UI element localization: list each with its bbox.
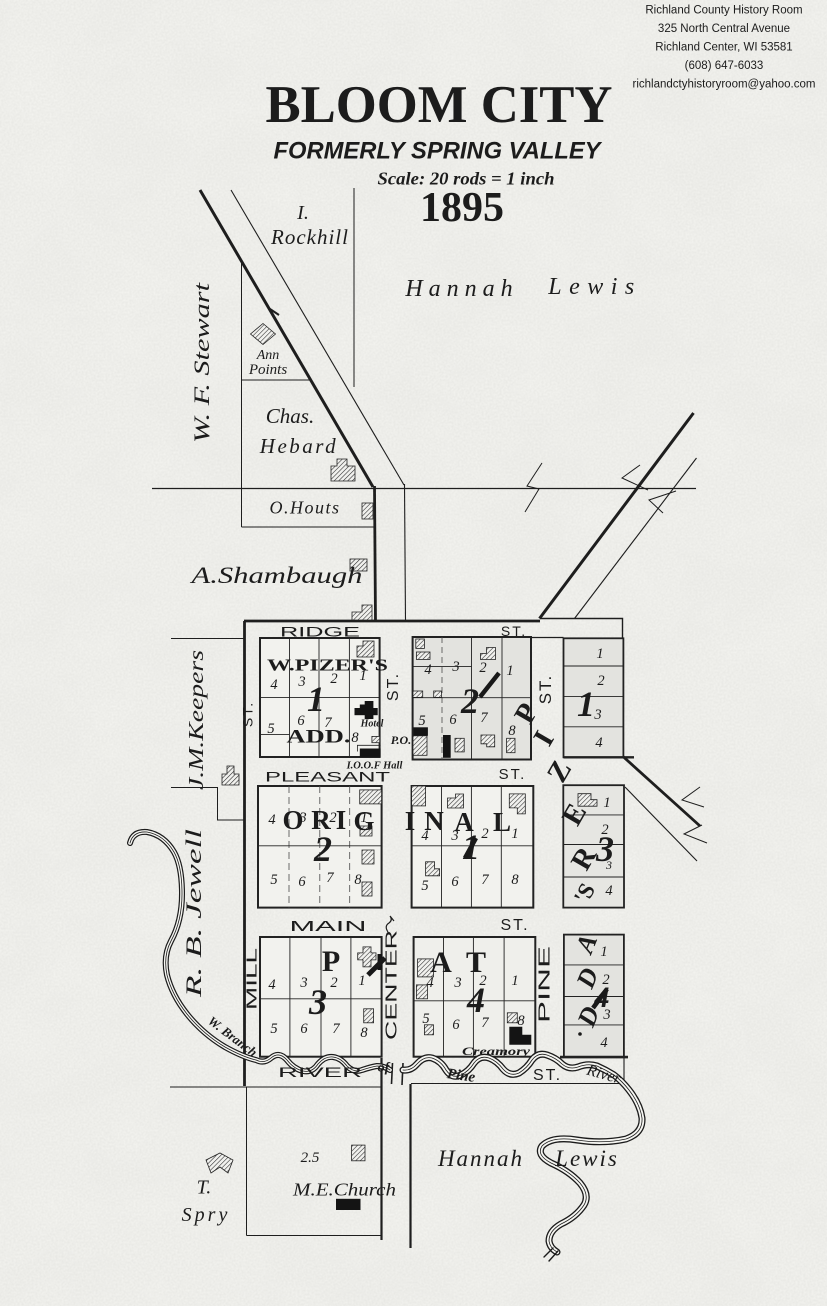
- svg-text:1: 1: [360, 810, 367, 826]
- svg-text:O.Houts: O.Houts: [269, 498, 340, 518]
- svg-text:8: 8: [360, 1025, 368, 1041]
- svg-text:Points: Points: [248, 362, 287, 378]
- svg-text:3: 3: [593, 707, 601, 723]
- svg-text:7: 7: [481, 872, 489, 888]
- svg-text:4: 4: [595, 735, 602, 751]
- svg-text:8: 8: [511, 872, 519, 888]
- svg-text:7: 7: [326, 870, 334, 886]
- svg-text:Ann: Ann: [256, 348, 280, 363]
- svg-text:6: 6: [452, 1017, 460, 1033]
- svg-text:4: 4: [424, 662, 431, 678]
- svg-text:Richland County History Room: Richland County History Room: [645, 5, 802, 17]
- svg-text:richlandctyhistoryroom@yahoo.c: richlandctyhistoryroom@yahoo.com: [633, 79, 816, 91]
- svg-text:6: 6: [300, 1021, 308, 1037]
- svg-text:ST.: ST.: [533, 1067, 562, 1084]
- svg-text:8: 8: [354, 872, 362, 888]
- svg-text:1: 1: [511, 973, 518, 989]
- svg-text:5: 5: [267, 721, 274, 737]
- svg-text:BLOOM CITY: BLOOM CITY: [266, 76, 613, 134]
- svg-text:ADD.: ADD.: [287, 727, 351, 748]
- svg-text:4: 4: [605, 883, 612, 899]
- svg-text:2: 2: [479, 973, 486, 989]
- svg-text:RIVER: RIVER: [278, 1064, 362, 1080]
- svg-text:6: 6: [449, 712, 457, 728]
- svg-text:8: 8: [351, 730, 359, 746]
- svg-text:4: 4: [268, 977, 275, 993]
- svg-text:3: 3: [450, 828, 458, 844]
- svg-text:ST.: ST.: [536, 674, 555, 705]
- svg-text:4: 4: [268, 812, 275, 828]
- svg-text:2: 2: [602, 972, 609, 988]
- svg-text:5: 5: [270, 1021, 277, 1037]
- svg-text:W. F. Stewart: W. F. Stewart: [189, 282, 214, 443]
- svg-text:Hannah: Hannah: [437, 1146, 524, 1171]
- svg-text:RIDGE: RIDGE: [280, 625, 360, 640]
- svg-text:ST.: ST.: [500, 917, 529, 934]
- svg-text:PLEASANT: PLEASANT: [265, 769, 391, 785]
- svg-text:Lewis: Lewis: [547, 274, 642, 300]
- svg-text:Hebard: Hebard: [259, 434, 338, 458]
- svg-text:1: 1: [506, 663, 513, 679]
- svg-text:J.M.Keepers: J.M.Keepers: [184, 650, 208, 790]
- svg-text:I: I: [405, 806, 416, 836]
- svg-text:3: 3: [299, 975, 307, 991]
- svg-text:2: 2: [597, 673, 604, 689]
- svg-text:I: I: [336, 805, 347, 835]
- svg-text:Chas.: Chas.: [266, 404, 314, 428]
- svg-text:2: 2: [313, 829, 332, 869]
- svg-text:Creamory: Creamory: [462, 1044, 531, 1058]
- svg-text:ST.: ST.: [501, 623, 527, 639]
- svg-text:7: 7: [481, 1015, 489, 1031]
- svg-text:3: 3: [605, 858, 612, 872]
- svg-text:4: 4: [270, 677, 277, 693]
- svg-text:6: 6: [298, 874, 306, 890]
- svg-text:4: 4: [600, 1035, 607, 1051]
- svg-text:1: 1: [359, 668, 366, 684]
- svg-text:1: 1: [511, 826, 518, 842]
- svg-text:Lewis: Lewis: [554, 1146, 619, 1171]
- svg-text:A.Shambaugh: A.Shambaugh: [189, 563, 363, 588]
- svg-text:3: 3: [451, 659, 459, 675]
- svg-text:5: 5: [422, 1011, 429, 1027]
- svg-text:MAIN: MAIN: [290, 919, 367, 935]
- svg-text:P: P: [322, 945, 340, 978]
- svg-text:1: 1: [577, 684, 595, 724]
- svg-text:I.: I.: [296, 202, 309, 224]
- svg-text:3: 3: [297, 674, 305, 690]
- svg-text:7: 7: [332, 1021, 340, 1037]
- svg-text:PINE: PINE: [537, 946, 554, 1023]
- svg-text:ST.: ST.: [240, 701, 256, 727]
- svg-text:Richland Center, WI 53581: Richland Center, WI 53581: [655, 42, 792, 54]
- svg-text:5: 5: [421, 878, 428, 894]
- svg-text:Spry: Spry: [182, 1204, 231, 1226]
- svg-text:Hotel: Hotel: [360, 719, 384, 730]
- svg-text:1: 1: [358, 973, 365, 989]
- svg-text:8: 8: [517, 1013, 525, 1029]
- svg-text:Rockhill: Rockhill: [270, 225, 349, 249]
- svg-text:2: 2: [479, 660, 486, 676]
- svg-text:of: of: [378, 1061, 391, 1076]
- svg-text:6: 6: [297, 713, 305, 729]
- svg-text:7: 7: [480, 710, 488, 726]
- svg-text:2: 2: [329, 810, 336, 826]
- svg-text:L: L: [493, 807, 511, 837]
- svg-text:R. B. Jewell: R. B. Jewell: [181, 829, 206, 999]
- svg-text:4: 4: [426, 975, 433, 991]
- svg-text:T.: T.: [197, 1177, 212, 1199]
- svg-text:W.PIZER'S: W.PIZER'S: [267, 656, 388, 675]
- svg-text:8: 8: [508, 723, 516, 739]
- svg-text:6: 6: [451, 874, 459, 890]
- svg-text:2: 2: [460, 681, 479, 721]
- svg-text:(608) 647-6033: (608) 647-6033: [685, 60, 764, 72]
- svg-text:3: 3: [308, 982, 327, 1022]
- svg-text:1: 1: [600, 944, 607, 960]
- svg-text:M.E.Church: M.E.Church: [292, 1180, 396, 1200]
- svg-text:MILL: MILL: [244, 948, 261, 1010]
- svg-text:1: 1: [307, 679, 325, 719]
- svg-text:ST.: ST.: [385, 672, 402, 701]
- svg-text:7: 7: [324, 715, 332, 731]
- svg-text:4: 4: [421, 828, 428, 844]
- svg-text:325 North Central Avenue: 325 North Central Avenue: [658, 23, 790, 35]
- svg-text:ST.: ST.: [499, 766, 527, 783]
- svg-text:2: 2: [330, 975, 337, 991]
- svg-text:2.5: 2.5: [301, 1150, 320, 1166]
- svg-text:1895: 1895: [420, 185, 504, 231]
- svg-text:2: 2: [330, 671, 337, 687]
- svg-text:1: 1: [603, 795, 610, 811]
- svg-text:3: 3: [453, 975, 461, 991]
- svg-text:1: 1: [596, 646, 603, 662]
- svg-text:5: 5: [418, 713, 425, 729]
- svg-text:5: 5: [270, 872, 277, 888]
- svg-text:2: 2: [601, 822, 608, 838]
- svg-text:3: 3: [602, 1007, 610, 1023]
- svg-text:P.O.: P.O.: [391, 733, 411, 747]
- svg-text:3: 3: [298, 810, 306, 826]
- svg-text:2: 2: [481, 826, 488, 842]
- svg-text:CENTER: CENTER: [384, 930, 401, 1040]
- svg-text:FORMERLY SPRING VALLEY: FORMERLY SPRING VALLEY: [274, 138, 603, 165]
- svg-text:Hannah: Hannah: [404, 276, 518, 302]
